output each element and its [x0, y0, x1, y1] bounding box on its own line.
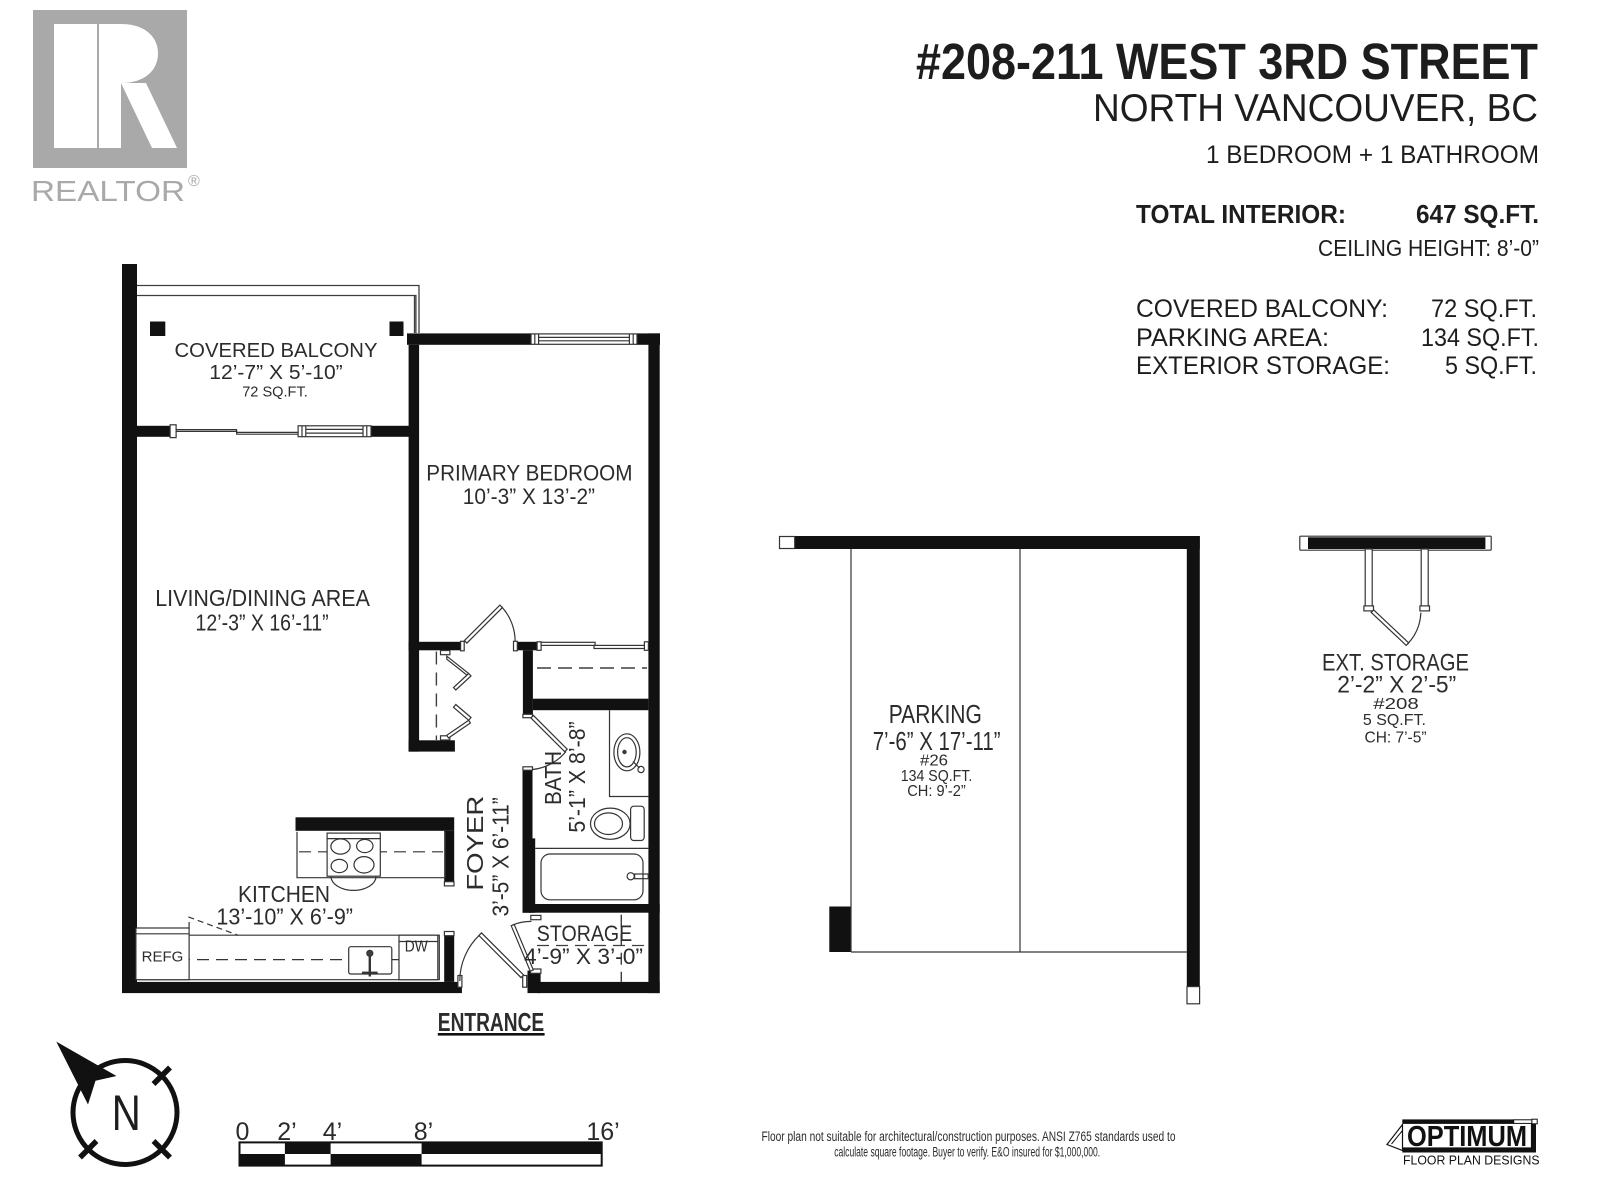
svg-text:STORAGE: STORAGE: [537, 921, 632, 946]
svg-text:12’-7” X 5’-10”: 12’-7” X 5’-10”: [209, 362, 342, 384]
svg-text:LIVING/DINING AREA: LIVING/DINING AREA: [155, 585, 370, 611]
svg-text:CH: 7’-5”: CH: 7’-5”: [1365, 730, 1427, 747]
svg-text:0: 0: [236, 1118, 250, 1146]
svg-text:5 SQ.FT.: 5 SQ.FT.: [1445, 352, 1537, 380]
svg-text:PARKING: PARKING: [889, 699, 982, 729]
svg-text:1 BEDROOM + 1 BATHROOM: 1 BEDROOM + 1 BATHROOM: [1206, 141, 1539, 169]
svg-text:FLOOR PLAN DESIGNS: FLOOR PLAN DESIGNS: [1403, 1154, 1540, 1168]
svg-text:#208-211 WEST 3RD STREET: #208-211 WEST 3RD STREET: [916, 33, 1538, 90]
svg-text:DW: DW: [405, 939, 428, 956]
svg-text:2’-2” X 2’-5”: 2’-2” X 2’-5”: [1337, 672, 1456, 699]
svg-text:CEILING HEIGHT: 8’-0”: CEILING HEIGHT: 8’-0”: [1318, 235, 1539, 261]
svg-text:647 SQ.FT.: 647 SQ.FT.: [1416, 199, 1539, 229]
svg-text:3’-5” X 6’-11”: 3’-5” X 6’-11”: [487, 797, 513, 916]
svg-text:PRIMARY BEDROOM: PRIMARY BEDROOM: [426, 460, 632, 485]
svg-text:OPTIMUM: OPTIMUM: [1407, 1121, 1527, 1153]
svg-text:COVERED BALCONY:: COVERED BALCONY:: [1136, 295, 1388, 323]
svg-text:N: N: [112, 1085, 141, 1141]
svg-text:TOTAL INTERIOR:: TOTAL INTERIOR:: [1136, 199, 1346, 229]
svg-text:®: ®: [188, 173, 200, 190]
svg-text:BATH: BATH: [540, 751, 566, 805]
svg-text:72 SQ.FT.: 72 SQ.FT.: [242, 384, 308, 401]
svg-text:#208: #208: [1373, 696, 1419, 713]
svg-text:CH: 9’-2”: CH: 9’-2”: [907, 783, 966, 800]
svg-text:10’-3” X 13’-2”: 10’-3” X 13’-2”: [463, 484, 595, 509]
svg-text:PARKING AREA:: PARKING AREA:: [1136, 324, 1329, 352]
svg-text:2’: 2’: [277, 1118, 296, 1146]
svg-text:72 SQ.FT.: 72 SQ.FT.: [1431, 295, 1537, 323]
svg-text:ENTRANCE: ENTRANCE: [438, 1007, 544, 1037]
svg-text:COVERED BALCONY: COVERED BALCONY: [175, 340, 378, 362]
svg-text:REFG: REFG: [142, 949, 184, 966]
svg-text:NORTH VANCOUVER, BC: NORTH VANCOUVER, BC: [1093, 87, 1538, 130]
svg-text:Floor plan not suitable for ar: Floor plan not suitable for architectura…: [762, 1129, 1176, 1144]
svg-text:4’: 4’: [323, 1118, 342, 1146]
svg-text:5 SQ.FT.: 5 SQ.FT.: [1363, 712, 1426, 729]
svg-text:REALTOR: REALTOR: [31, 176, 185, 208]
svg-text:FOYER: FOYER: [462, 796, 488, 891]
svg-text:EXTERIOR STORAGE:: EXTERIOR STORAGE:: [1136, 352, 1390, 380]
svg-text:5’-1” X 8’-8”: 5’-1” X 8’-8”: [564, 721, 590, 832]
svg-text:7’-6” X 17’-11”: 7’-6” X 17’-11”: [873, 726, 1001, 756]
svg-text:4’-9” X 3’-0”: 4’-9” X 3’-0”: [524, 944, 643, 969]
svg-text:134 SQ.FT.: 134 SQ.FT.: [1421, 324, 1539, 352]
svg-text:16’: 16’: [586, 1118, 619, 1146]
svg-text:13’-10” X 6’-9”: 13’-10” X 6’-9”: [216, 903, 353, 929]
svg-text:8’: 8’: [414, 1118, 433, 1146]
svg-text:calculate square footage. Buye: calculate square footage. Buyer to verif…: [834, 1145, 1100, 1160]
svg-text:12’-3” X 16’-11”: 12’-3” X 16’-11”: [196, 610, 329, 636]
